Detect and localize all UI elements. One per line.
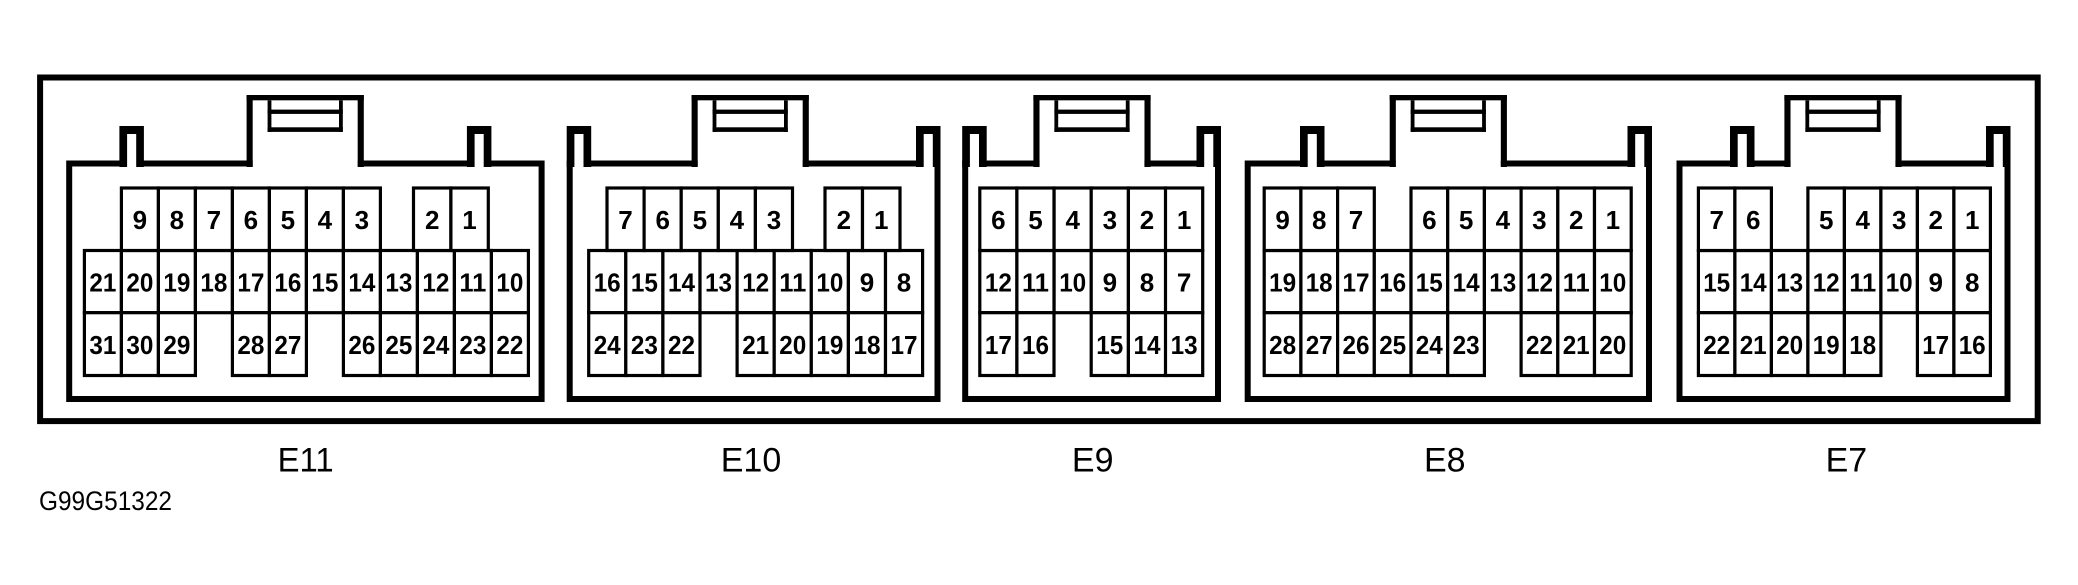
svg-text:30: 30 bbox=[126, 330, 153, 360]
svg-text:10: 10 bbox=[1599, 267, 1626, 297]
svg-text:2: 2 bbox=[1140, 205, 1154, 235]
svg-text:19: 19 bbox=[1269, 267, 1296, 297]
svg-text:22: 22 bbox=[496, 330, 523, 360]
svg-text:27: 27 bbox=[274, 330, 301, 360]
svg-text:26: 26 bbox=[1343, 330, 1370, 360]
svg-text:7: 7 bbox=[1177, 267, 1191, 297]
svg-text:6: 6 bbox=[244, 205, 258, 235]
svg-text:9: 9 bbox=[1103, 267, 1117, 297]
svg-text:21: 21 bbox=[89, 267, 116, 297]
svg-text:11: 11 bbox=[1563, 267, 1590, 297]
svg-text:6: 6 bbox=[1422, 205, 1436, 235]
svg-text:22: 22 bbox=[1703, 330, 1730, 360]
svg-text:2: 2 bbox=[1928, 205, 1942, 235]
svg-text:16: 16 bbox=[1959, 330, 1986, 360]
svg-text:18: 18 bbox=[1306, 267, 1333, 297]
svg-text:4: 4 bbox=[318, 205, 333, 235]
svg-text:4: 4 bbox=[1855, 205, 1870, 235]
svg-text:8: 8 bbox=[1312, 205, 1326, 235]
svg-text:9: 9 bbox=[860, 267, 874, 297]
svg-text:1: 1 bbox=[462, 205, 476, 235]
svg-text:2: 2 bbox=[425, 205, 439, 235]
svg-text:18: 18 bbox=[1849, 330, 1876, 360]
svg-text:21: 21 bbox=[1740, 330, 1767, 360]
svg-text:8: 8 bbox=[897, 267, 911, 297]
svg-text:E8: E8 bbox=[1424, 442, 1466, 480]
svg-text:16: 16 bbox=[594, 267, 621, 297]
svg-text:E11: E11 bbox=[278, 442, 334, 480]
svg-text:3: 3 bbox=[1892, 205, 1906, 235]
svg-text:10: 10 bbox=[1886, 267, 1913, 297]
svg-text:4: 4 bbox=[1496, 205, 1511, 235]
svg-text:12: 12 bbox=[985, 267, 1012, 297]
svg-text:15: 15 bbox=[1703, 267, 1730, 297]
svg-text:6: 6 bbox=[655, 205, 669, 235]
svg-text:15: 15 bbox=[631, 267, 658, 297]
svg-text:6: 6 bbox=[991, 205, 1005, 235]
svg-text:G99G51322: G99G51322 bbox=[39, 486, 172, 516]
svg-text:25: 25 bbox=[385, 330, 412, 360]
svg-text:15: 15 bbox=[1416, 267, 1443, 297]
svg-text:7: 7 bbox=[618, 205, 632, 235]
svg-text:17: 17 bbox=[891, 330, 918, 360]
svg-text:19: 19 bbox=[163, 267, 190, 297]
svg-text:31: 31 bbox=[89, 330, 116, 360]
svg-text:13: 13 bbox=[1171, 330, 1198, 360]
svg-text:20: 20 bbox=[779, 330, 806, 360]
svg-text:19: 19 bbox=[1813, 330, 1840, 360]
svg-text:20: 20 bbox=[1599, 330, 1626, 360]
svg-text:23: 23 bbox=[1453, 330, 1480, 360]
svg-text:13: 13 bbox=[385, 267, 412, 297]
svg-text:9: 9 bbox=[133, 205, 147, 235]
svg-text:16: 16 bbox=[274, 267, 301, 297]
svg-text:5: 5 bbox=[1028, 205, 1042, 235]
svg-text:26: 26 bbox=[348, 330, 375, 360]
svg-text:23: 23 bbox=[631, 330, 658, 360]
svg-text:21: 21 bbox=[742, 330, 769, 360]
svg-text:11: 11 bbox=[1849, 267, 1876, 297]
svg-text:14: 14 bbox=[348, 267, 376, 297]
svg-text:3: 3 bbox=[1532, 205, 1546, 235]
svg-text:22: 22 bbox=[1526, 330, 1553, 360]
svg-text:24: 24 bbox=[594, 330, 622, 360]
svg-text:10: 10 bbox=[816, 267, 843, 297]
svg-text:5: 5 bbox=[1819, 205, 1833, 235]
svg-text:22: 22 bbox=[668, 330, 695, 360]
svg-text:9: 9 bbox=[1275, 205, 1289, 235]
svg-text:12: 12 bbox=[742, 267, 769, 297]
svg-text:8: 8 bbox=[1965, 267, 1979, 297]
svg-text:3: 3 bbox=[355, 205, 369, 235]
svg-text:1: 1 bbox=[1177, 205, 1191, 235]
svg-text:14: 14 bbox=[1134, 330, 1162, 360]
svg-text:14: 14 bbox=[1453, 267, 1481, 297]
svg-text:15: 15 bbox=[311, 267, 338, 297]
svg-text:28: 28 bbox=[237, 330, 264, 360]
svg-text:7: 7 bbox=[1709, 205, 1723, 235]
svg-text:24: 24 bbox=[422, 330, 450, 360]
svg-text:20: 20 bbox=[1776, 330, 1803, 360]
svg-text:13: 13 bbox=[1489, 267, 1516, 297]
svg-text:14: 14 bbox=[668, 267, 696, 297]
svg-text:17: 17 bbox=[985, 330, 1012, 360]
svg-text:23: 23 bbox=[459, 330, 486, 360]
svg-text:12: 12 bbox=[1813, 267, 1840, 297]
svg-text:5: 5 bbox=[693, 205, 707, 235]
svg-text:19: 19 bbox=[816, 330, 843, 360]
svg-text:18: 18 bbox=[854, 330, 881, 360]
svg-text:7: 7 bbox=[1349, 205, 1363, 235]
svg-text:13: 13 bbox=[705, 267, 732, 297]
svg-text:18: 18 bbox=[200, 267, 227, 297]
svg-text:27: 27 bbox=[1306, 330, 1333, 360]
svg-text:12: 12 bbox=[422, 267, 449, 297]
svg-text:15: 15 bbox=[1096, 330, 1123, 360]
svg-text:13: 13 bbox=[1776, 267, 1803, 297]
svg-text:21: 21 bbox=[1563, 330, 1590, 360]
svg-text:17: 17 bbox=[237, 267, 264, 297]
svg-text:16: 16 bbox=[1022, 330, 1049, 360]
svg-text:14: 14 bbox=[1740, 267, 1768, 297]
svg-text:11: 11 bbox=[459, 267, 486, 297]
svg-text:28: 28 bbox=[1269, 330, 1296, 360]
svg-text:10: 10 bbox=[496, 267, 523, 297]
svg-text:E9: E9 bbox=[1072, 442, 1114, 480]
svg-text:2: 2 bbox=[837, 205, 851, 235]
svg-text:4: 4 bbox=[730, 205, 745, 235]
svg-text:11: 11 bbox=[1022, 267, 1049, 297]
svg-text:8: 8 bbox=[170, 205, 184, 235]
svg-text:8: 8 bbox=[1140, 267, 1154, 297]
svg-text:16: 16 bbox=[1379, 267, 1406, 297]
svg-text:29: 29 bbox=[163, 330, 190, 360]
svg-text:24: 24 bbox=[1416, 330, 1444, 360]
svg-text:5: 5 bbox=[1459, 205, 1473, 235]
svg-text:1: 1 bbox=[874, 205, 888, 235]
svg-text:3: 3 bbox=[767, 205, 781, 235]
svg-text:17: 17 bbox=[1343, 267, 1370, 297]
svg-text:4: 4 bbox=[1065, 205, 1080, 235]
svg-text:10: 10 bbox=[1059, 267, 1086, 297]
svg-text:5: 5 bbox=[281, 205, 295, 235]
svg-text:2: 2 bbox=[1569, 205, 1583, 235]
svg-text:11: 11 bbox=[779, 267, 806, 297]
svg-text:E10: E10 bbox=[721, 442, 782, 480]
svg-text:3: 3 bbox=[1103, 205, 1117, 235]
svg-text:1: 1 bbox=[1606, 205, 1620, 235]
svg-text:12: 12 bbox=[1526, 267, 1553, 297]
svg-text:6: 6 bbox=[1746, 205, 1760, 235]
svg-text:20: 20 bbox=[126, 267, 153, 297]
svg-text:1: 1 bbox=[1965, 205, 1979, 235]
svg-text:7: 7 bbox=[207, 205, 221, 235]
svg-text:17: 17 bbox=[1922, 330, 1949, 360]
svg-text:9: 9 bbox=[1928, 267, 1942, 297]
svg-text:E7: E7 bbox=[1826, 442, 1868, 480]
svg-text:25: 25 bbox=[1379, 330, 1406, 360]
